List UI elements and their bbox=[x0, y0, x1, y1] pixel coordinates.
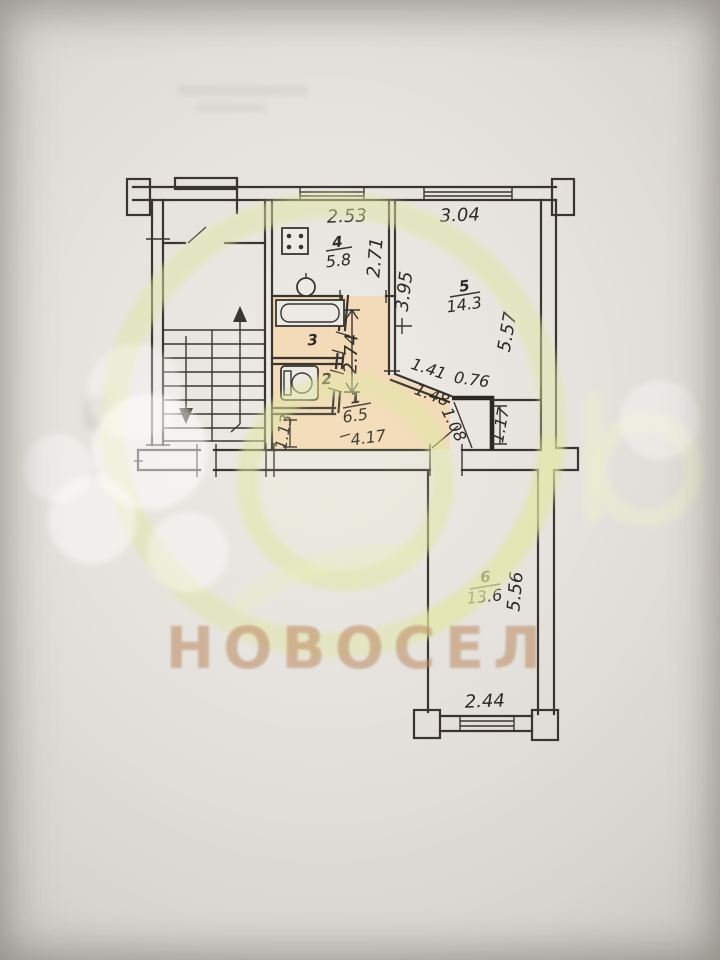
window-bedroom bbox=[460, 716, 514, 731]
avito-watermark bbox=[24, 205, 700, 645]
dim-closet-width: 0.76 bbox=[453, 368, 491, 392]
dim-hall-diag-upper: 1.41 bbox=[409, 354, 449, 383]
stove-icon bbox=[282, 228, 308, 254]
wall-cap-top-left bbox=[127, 179, 150, 215]
floorplan-svg: 2.53 4 5.8 2.71 3.04 3.95 5 14.3 5.57 3 … bbox=[0, 0, 720, 960]
bathtub-icon bbox=[276, 300, 344, 326]
sink-icon bbox=[297, 273, 315, 296]
room-living-number: 5 bbox=[458, 276, 471, 295]
agency-watermark: НОВОСЕЛ bbox=[166, 614, 551, 682]
floorplan-photo: 2.53 4 5.8 2.71 3.04 3.95 5 14.3 5.57 3 … bbox=[0, 0, 720, 960]
dim-hall-height: 2.74 bbox=[340, 333, 362, 374]
wall-cap-bottom-left bbox=[414, 710, 440, 738]
stairs-arrow-up bbox=[231, 306, 247, 432]
dim-bedroom-width: 2.44 bbox=[464, 690, 505, 712]
dim-living-left-depth: 3.95 bbox=[392, 270, 418, 312]
room-bath-number: 3 bbox=[307, 331, 319, 350]
dim-kitchen-depth: 2.71 bbox=[363, 237, 387, 279]
window-living bbox=[424, 187, 512, 200]
room-kitchen-area: 5.8 bbox=[325, 250, 352, 272]
room-living-area: 14.3 bbox=[445, 293, 483, 317]
